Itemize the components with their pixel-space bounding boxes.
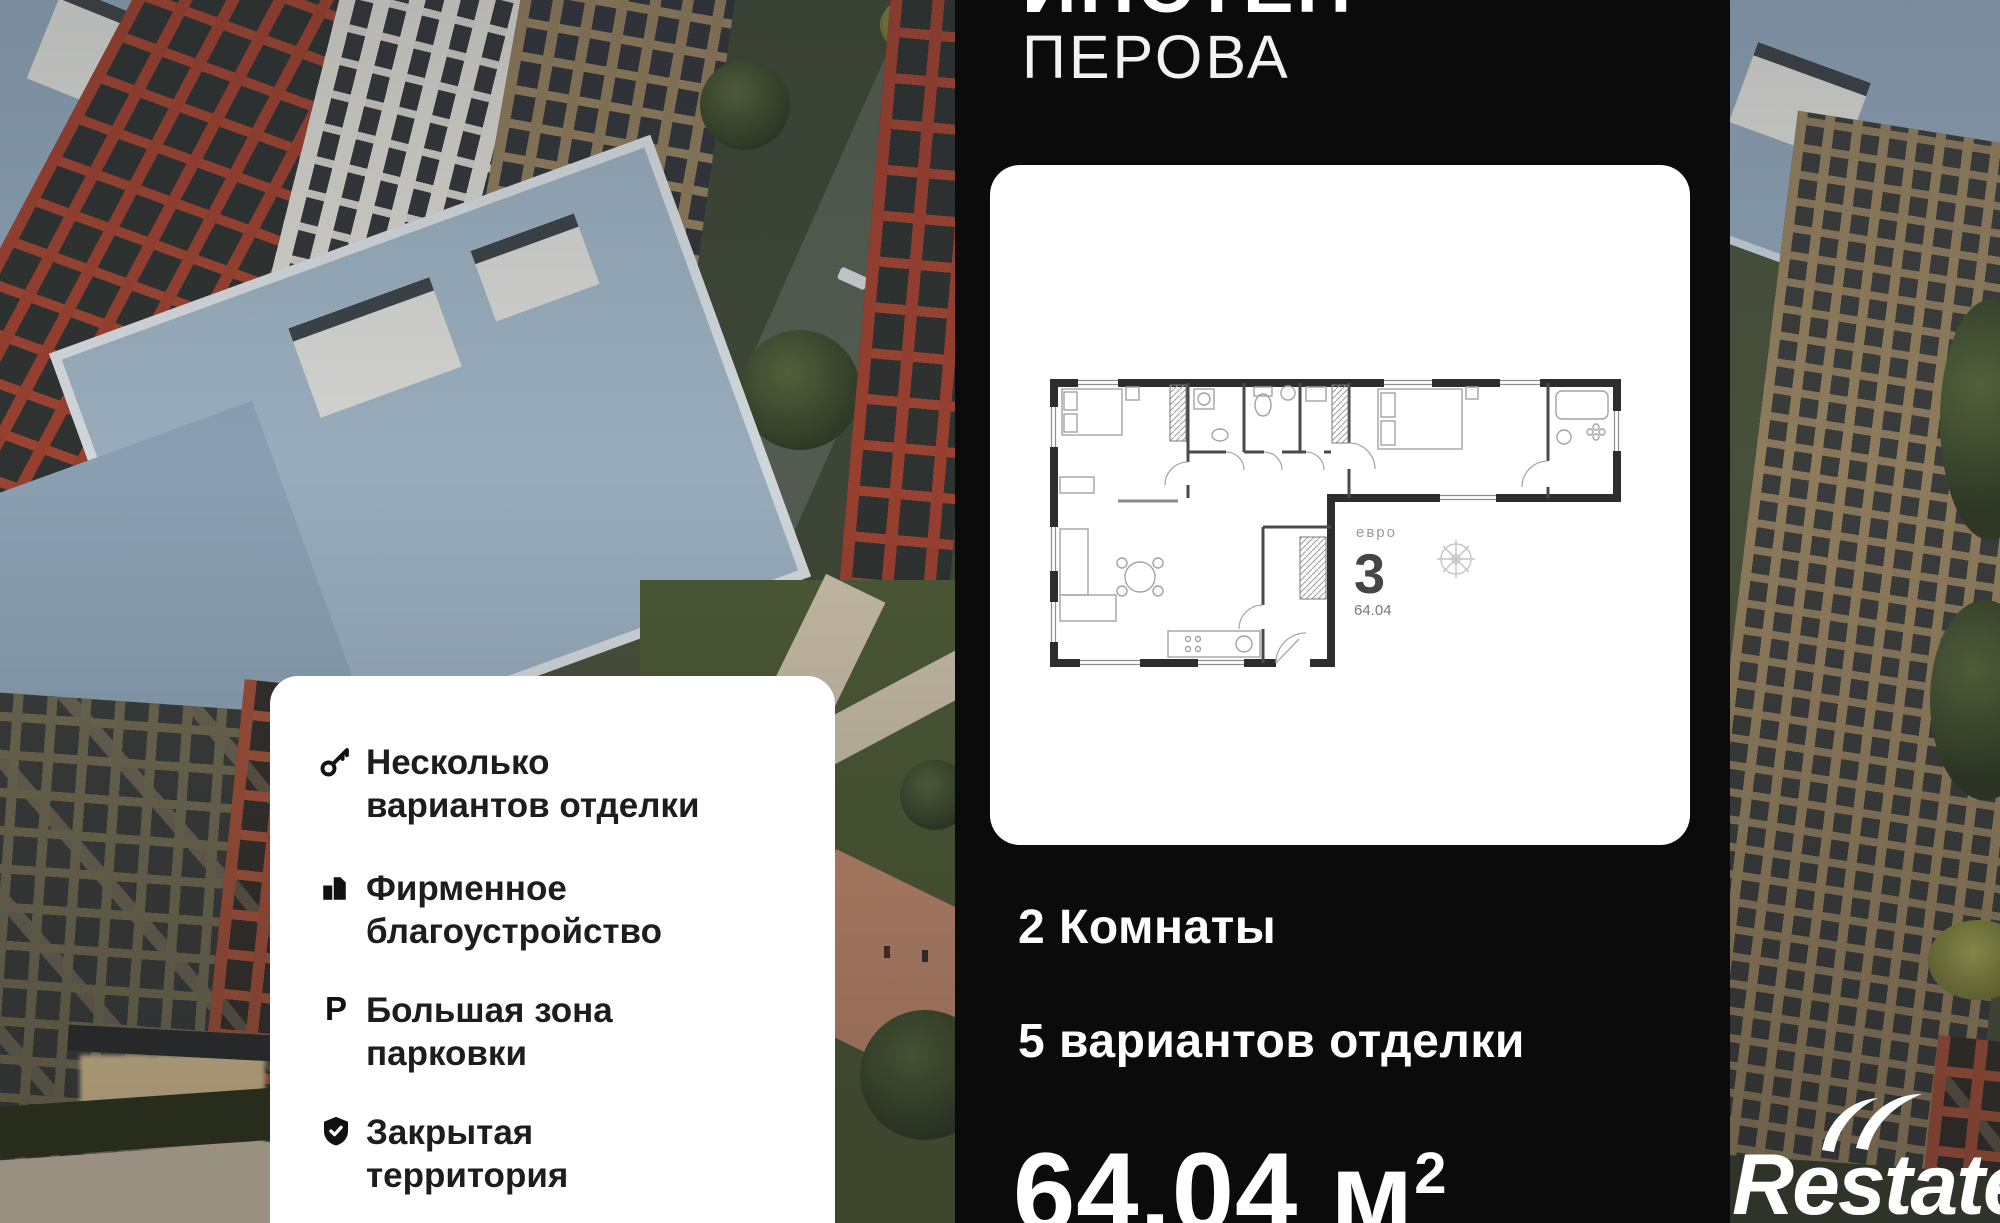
feature-line: благоустройство <box>366 910 798 953</box>
plan-type-label: евро <box>1356 524 1397 541</box>
person <box>884 946 890 958</box>
area-value: 64.04 <box>1013 1130 1298 1223</box>
feature-item: P Большая зона парковки <box>318 989 798 1075</box>
promo-card: Несколько вариантов отделки Фирменное бл… <box>0 0 2000 1223</box>
building-icon <box>318 869 354 905</box>
parking-icon: P <box>318 991 354 1027</box>
feature-line: Большая зона <box>366 989 798 1032</box>
feature-line: Несколько <box>366 741 798 784</box>
feature-line: Закрытая <box>366 1111 798 1154</box>
area-sup: 2 <box>1414 1141 1447 1206</box>
feature-line: Фирменное <box>366 867 798 910</box>
person <box>922 950 928 962</box>
apartment-area: 64.04 м2 <box>1013 1128 1448 1223</box>
floorplan-svg: евро 3 64.04 <box>1048 377 1623 669</box>
compass-icon <box>1437 540 1475 578</box>
rooms-count: 2 Комнаты <box>1018 900 1276 955</box>
plan-area-small: 64.04 <box>1354 602 1392 619</box>
key-icon <box>318 743 354 779</box>
area-unit: м <box>1298 1130 1414 1223</box>
finish-options: 5 вариантов отделки <box>1018 1014 1525 1069</box>
feature-line: территория <box>366 1154 798 1197</box>
shield-check-icon <box>318 1113 354 1149</box>
feature-line: вариантов отделки <box>366 784 798 827</box>
floorplan-card: евро 3 64.04 <box>990 165 1690 845</box>
feature-item: Фирменное благоустройство <box>318 867 798 953</box>
info-panel: ИНСТЕП ПЕРОВА <box>955 0 1730 1223</box>
restate-logo-text: Restate <box>1732 1136 2000 1223</box>
feature-line: парковки <box>366 1032 798 1075</box>
features-card: Несколько вариантов отделки Фирменное бл… <box>270 676 835 1223</box>
feature-item: Закрытая территория <box>318 1111 798 1197</box>
complex-name-line2: ПЕРОВА <box>1022 22 1291 92</box>
restate-logo: Restate <box>1728 1092 2000 1223</box>
feature-item: Несколько вариантов отделки <box>318 741 798 827</box>
tree <box>700 60 790 150</box>
plan-type-number: 3 <box>1354 542 1385 605</box>
